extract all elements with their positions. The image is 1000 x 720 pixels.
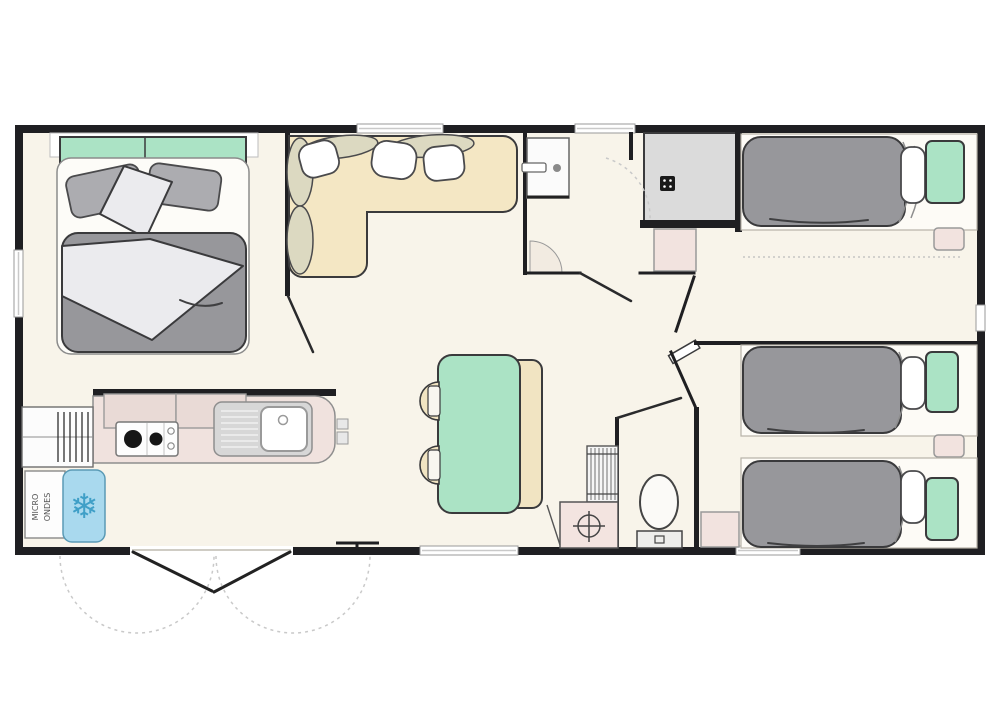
- mobile-home-floor-plan: MICRO ONDES ❄: [0, 0, 1000, 720]
- washbasin: [522, 138, 569, 198]
- sofa-bolster-2: [287, 206, 313, 274]
- fridge: ❄: [63, 470, 105, 542]
- floor-plan-canvas: MICRO ONDES ❄: [0, 0, 1000, 720]
- shower-drain-icon: [660, 176, 675, 191]
- microwave-label-1: MICRO: [31, 494, 40, 521]
- single-bed-3-duvet: [743, 461, 901, 547]
- window-left-bedroom: [14, 250, 23, 317]
- window-top-bathroom: [575, 124, 635, 133]
- single-bed-1-duvet: [743, 137, 905, 226]
- faucet-icon: [522, 163, 546, 172]
- hob: [116, 422, 178, 456]
- wall-switch-2: [337, 432, 348, 444]
- wall-right: [977, 125, 985, 555]
- single-bed-1-pillow: [901, 147, 925, 203]
- drainer-lines: [221, 411, 258, 447]
- window-bottom-living: [420, 546, 518, 555]
- wc-side-cabinet: [701, 512, 739, 547]
- sofa-pillow-3: [422, 144, 465, 182]
- bedroom3-north-wall: [694, 341, 978, 345]
- single-bed-2-duvet: [743, 347, 901, 433]
- single-bed-1-cushion: [926, 141, 964, 203]
- wall-switch-1: [337, 419, 348, 429]
- toilet: [637, 475, 682, 548]
- single-bed-2-cushion: [926, 352, 958, 412]
- bathroom-wall-stub: [629, 132, 633, 160]
- wall-top: [15, 125, 985, 133]
- microwave-label-2: ONDES: [43, 493, 52, 522]
- door-swing-right: [216, 556, 370, 633]
- single-bed-2-pillow: [901, 357, 925, 409]
- dining-table: [438, 355, 520, 513]
- burner-large: [124, 430, 142, 448]
- water-heater: [587, 446, 618, 502]
- wall-left: [15, 125, 23, 555]
- sofa-pillow-2: [370, 139, 419, 181]
- microwave: MICRO ONDES: [25, 471, 65, 538]
- door-swing-left: [60, 556, 214, 633]
- wc-east-wall: [694, 407, 699, 548]
- bathroom-cabinet: [654, 229, 696, 271]
- basin-drain: [553, 164, 561, 172]
- single-bed-3-cushion: [926, 478, 958, 540]
- sink-basin: [261, 407, 307, 451]
- kitchen-sink: [214, 402, 312, 456]
- bedroom3-shelf: [934, 435, 964, 457]
- window-right: [976, 305, 985, 331]
- window-top-living: [357, 124, 443, 133]
- radiator-vent: [22, 407, 93, 467]
- bedroom2-shelf: [934, 228, 964, 250]
- snowflake-icon: ❄: [70, 487, 99, 527]
- entrance: [60, 543, 379, 633]
- door-leaf-left: [133, 552, 212, 591]
- single-bed-3-pillow: [901, 471, 925, 523]
- burner-medium: [150, 433, 163, 446]
- dining-area: [420, 355, 542, 513]
- door-leaf-right: [214, 552, 290, 592]
